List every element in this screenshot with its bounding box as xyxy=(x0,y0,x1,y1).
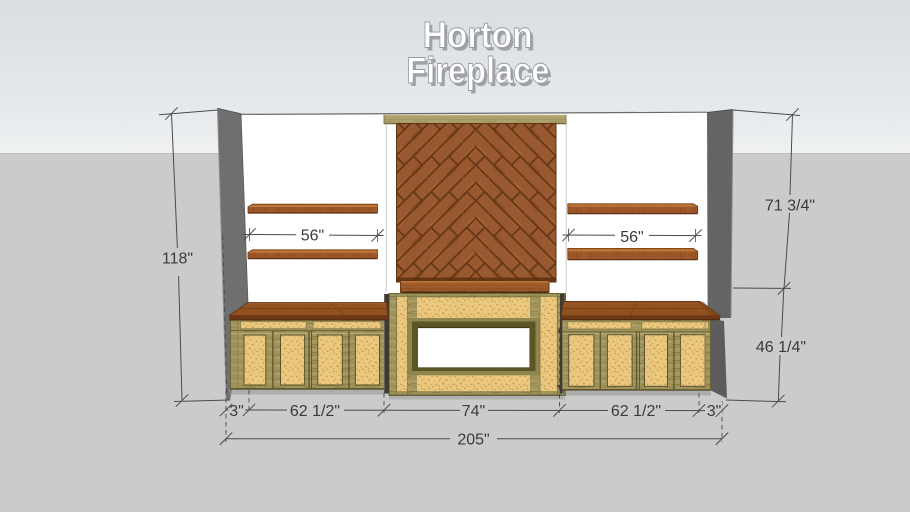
svg-text:205": 205" xyxy=(457,432,489,449)
svg-text:118": 118" xyxy=(162,251,193,268)
svg-text:74": 74" xyxy=(462,403,485,420)
svg-text:62 1/2": 62 1/2" xyxy=(611,403,661,420)
svg-text:56": 56" xyxy=(620,229,643,246)
svg-text:Fireplace: Fireplace xyxy=(406,50,549,91)
svg-text:3": 3" xyxy=(707,403,722,420)
svg-text:62 1/2": 62 1/2" xyxy=(290,403,340,420)
svg-text:56": 56" xyxy=(301,228,324,245)
svg-text:3": 3" xyxy=(229,403,244,420)
svg-text:71 3/4": 71 3/4" xyxy=(765,198,815,215)
svg-text:46 1/4": 46 1/4" xyxy=(756,339,806,356)
